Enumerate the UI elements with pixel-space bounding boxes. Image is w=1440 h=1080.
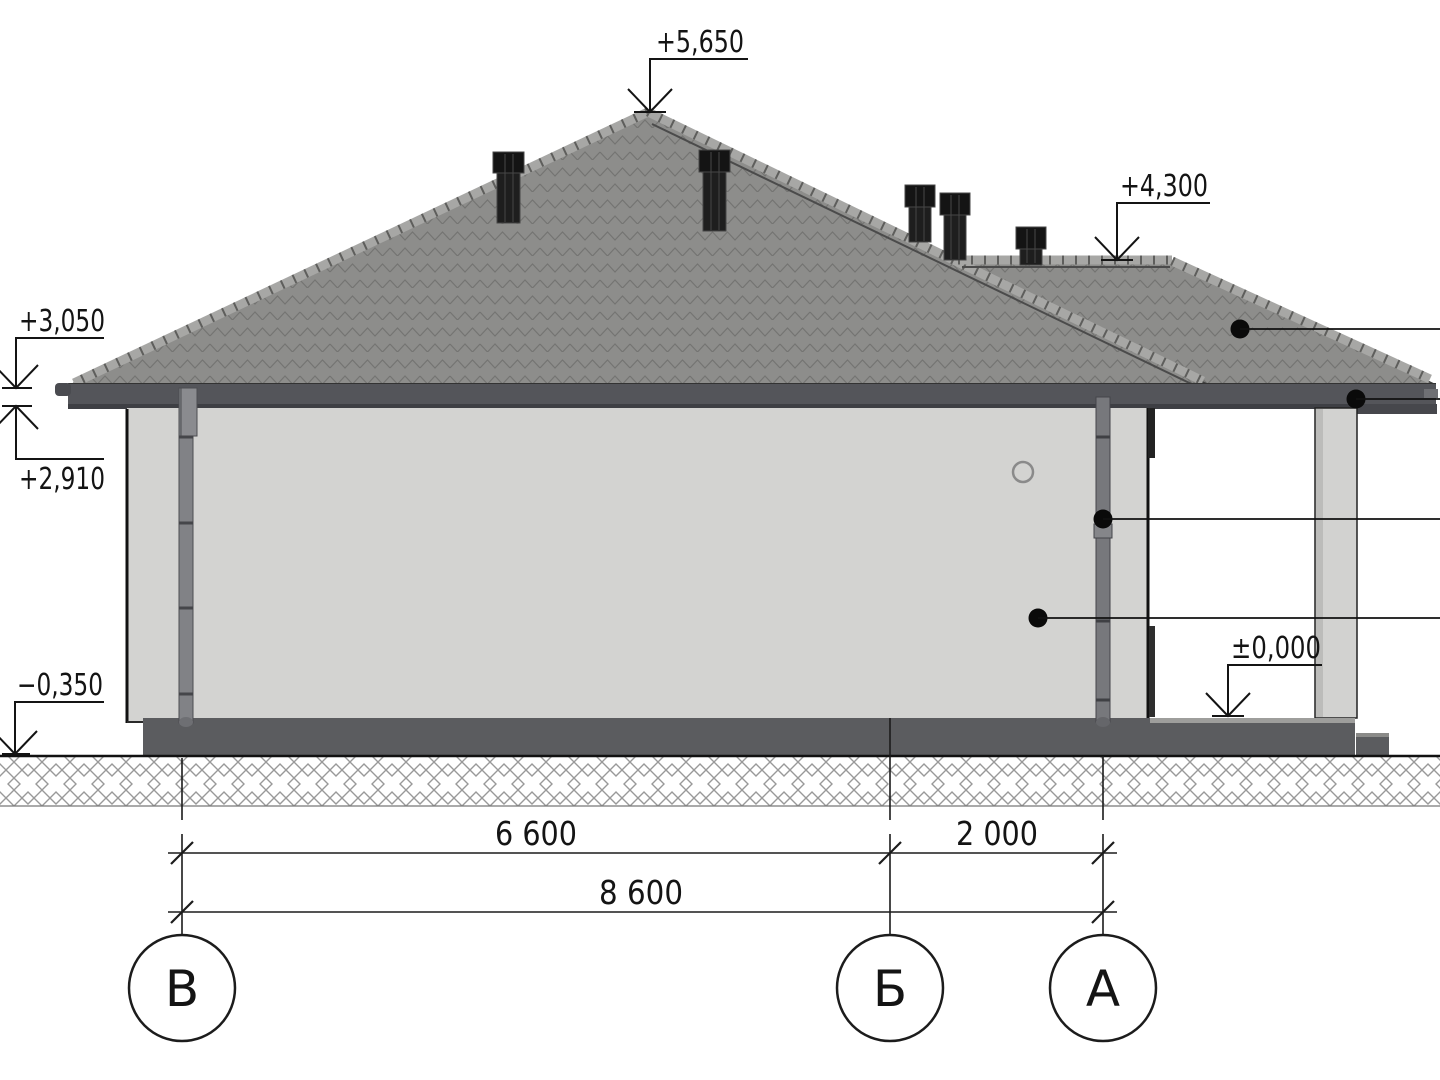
elevation-drawing: +5,650 +4,300 +3,050 +2,910 −0,350 ±0,00… <box>0 0 1440 1080</box>
axis-label: В <box>165 960 199 1018</box>
gutter-end-right <box>1424 389 1438 398</box>
axis-bubbles: В Б А <box>129 935 1156 1041</box>
elevation-marker-porch-floor: ±0,000 <box>1206 631 1322 716</box>
elevation-marker-peak: +5,650 <box>628 25 748 112</box>
dimension-span-ba: 2 000 <box>956 814 1038 853</box>
roof <box>68 112 1434 391</box>
elevation-marker-porch-ridge: +4,300 <box>1095 169 1210 260</box>
elevation-label: +5,650 <box>656 25 744 60</box>
axis-bubble-b: Б <box>837 935 943 1041</box>
axis-label: Б <box>873 960 907 1018</box>
vent-pipe <box>493 152 524 223</box>
downspout-right <box>1094 397 1112 727</box>
corner-trim-top <box>1148 408 1155 458</box>
porch-column <box>1315 408 1357 718</box>
fascia-end-soffit <box>1357 404 1437 414</box>
elevation-label: ±0,000 <box>1231 631 1321 666</box>
axis-label: А <box>1086 960 1120 1018</box>
elevation-marker-eave-bottom: +2,910 <box>0 406 105 497</box>
porch-slab-edge <box>1150 718 1355 723</box>
ground <box>0 756 1440 806</box>
vent-pipe <box>1016 227 1046 265</box>
vent-pipe <box>699 150 730 231</box>
dimension-total: 8 600 <box>599 873 683 912</box>
wall <box>127 408 1155 723</box>
axis-bubble-a: А <box>1050 935 1156 1041</box>
elevation-label: −0,350 <box>17 668 103 703</box>
corner-trim-bottom <box>1149 626 1155 717</box>
vent-pipe <box>905 185 935 242</box>
elevation-label: +3,050 <box>19 304 105 339</box>
axis-bubble-v: В <box>129 935 235 1041</box>
plinth <box>143 718 1389 756</box>
gutter-end-left <box>55 383 71 396</box>
dimension-span-vb: 6 600 <box>495 814 577 853</box>
vent-pipe <box>940 193 970 260</box>
elevation-marker-ground: −0,350 <box>0 668 104 754</box>
elevation-label: +4,300 <box>1120 169 1208 204</box>
elevation-label: +2,910 <box>19 462 105 497</box>
